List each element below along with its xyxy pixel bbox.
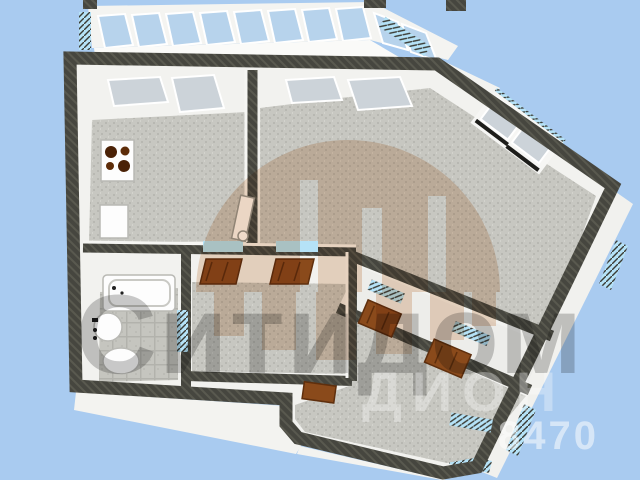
wall-stub xyxy=(364,0,386,8)
stove-icon xyxy=(101,140,134,181)
wall-stub xyxy=(446,0,466,11)
wall-stub xyxy=(83,0,97,9)
living-window-pane xyxy=(348,77,412,110)
kitchen-window-pane xyxy=(172,75,224,112)
floorplan-screenshot: Ситидом ДИОН 8470 xyxy=(0,0,640,480)
living-window-pane xyxy=(286,77,342,103)
kitchen-window-pane xyxy=(108,77,168,106)
kitchen-cabinet-icon xyxy=(100,205,128,238)
window-sill-hatch xyxy=(79,12,91,50)
floorplan-render: Ситидом ДИОН 8470 xyxy=(0,0,640,480)
watermark-phone-fragment: 8470 xyxy=(498,414,599,458)
